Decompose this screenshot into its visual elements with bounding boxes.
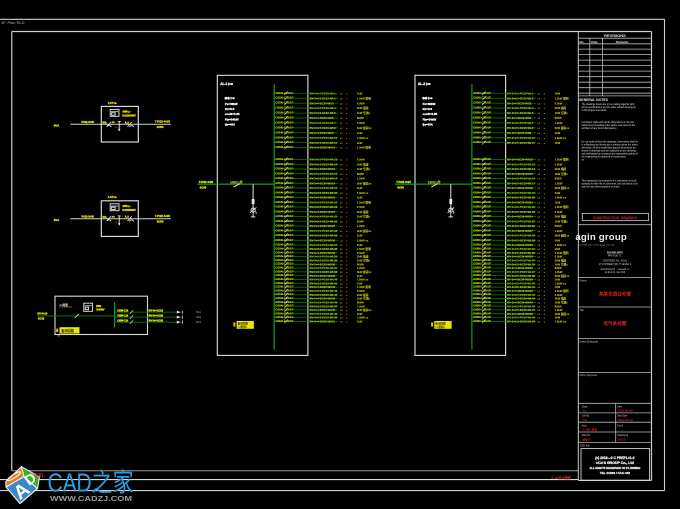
svg-text:1kW: 1kW bbox=[555, 191, 561, 195]
svg-text:BV-3×4-SC20-WX51: BV-3×4-SC20-WX51 bbox=[310, 319, 336, 323]
svg-text:C65N-C16/1P: C65N-C16/1P bbox=[275, 125, 293, 129]
svg-text:1.6kW xx: 1.6kW xx bbox=[357, 238, 369, 242]
svg-text:1.6kW xx: 1.6kW xx bbox=[555, 243, 567, 247]
svg-text:BV-2×2.5-PC16-WL13: BV-2×2.5-PC16-WL13 bbox=[310, 158, 338, 162]
svg-text:BV-3×4-SC20-WX27: BV-3×4-SC20-WX27 bbox=[507, 229, 533, 233]
svg-text:BV-3×2.5-SC15-WL20: BV-3×2.5-SC15-WL20 bbox=[310, 191, 338, 195]
svg-text:Contractor shall verify all th: Contractor shall verify all the dimensio… bbox=[582, 121, 635, 124]
svg-text:1kW: 1kW bbox=[555, 141, 561, 145]
svg-text:VV22-3×35: VV22-3×35 bbox=[81, 215, 94, 218]
svg-text:BV-3×4-SC20-WX6: BV-3×4-SC20-WX6 bbox=[310, 116, 334, 120]
svg-text:BV-3×4-SC20-WX12: BV-3×4-SC20-WX12 bbox=[507, 158, 533, 162]
svg-text:2kW 插座: 2kW 插座 bbox=[555, 297, 567, 301]
svg-text:BV-3×4-SC20-WX3: BV-3×4-SC20-WX3 bbox=[310, 101, 334, 105]
svg-text:.........: ......... bbox=[617, 428, 625, 432]
svg-text:1kW: 1kW bbox=[555, 238, 561, 242]
svg-text:C65N-C16/1P: C65N-C16/1P bbox=[473, 167, 491, 171]
svg-text:ALL RIGHTS RESERVED OF PLANNIN: ALL RIGHTS RESERVED OF PLANNING bbox=[589, 466, 640, 470]
svg-text:BV-3×2.5-SC15-WL17: BV-3×2.5-SC15-WL17 bbox=[507, 181, 535, 185]
svg-text:BV-3×4-SC20-WX39: BV-3×4-SC20-WX39 bbox=[507, 278, 533, 282]
svg-text:C65N-C16/1P: C65N-C16/1P bbox=[275, 200, 293, 204]
svg-text:1kW 空调x: 1kW 空调x bbox=[357, 297, 371, 301]
svg-text:C65N-C16/1P: C65N-C16/1P bbox=[473, 233, 491, 237]
svg-text:1.5kW 照明: 1.5kW 照明 bbox=[555, 205, 569, 209]
svg-text:备用回路: 备用回路 bbox=[60, 328, 75, 333]
svg-text:3×380V: 3×380V bbox=[96, 308, 105, 311]
svg-text:C65N-C16/1P: C65N-C16/1P bbox=[473, 224, 491, 228]
svg-text:Pjs=24kW: Pjs=24kW bbox=[423, 117, 437, 121]
svg-text:3kW 厨房xx: 3kW 厨房xx bbox=[357, 126, 372, 130]
svg-text:REVISIONS: REVISIONS bbox=[604, 33, 626, 38]
svg-text:Project: Project bbox=[580, 279, 588, 282]
svg-text:BV-2×2.5-PC16-WL22: BV-2×2.5-PC16-WL22 bbox=[310, 200, 338, 204]
svg-text:1AT1a: 1AT1a bbox=[108, 101, 117, 105]
svg-text:C65N-C16/1P: C65N-C16/1P bbox=[275, 162, 293, 166]
svg-text:Drawn (Designed): Drawn (Designed) bbox=[580, 340, 599, 343]
svg-text:C65N-C16/1P: C65N-C16/1P bbox=[473, 91, 491, 95]
svg-text:1kW 空调x: 1kW 空调x bbox=[555, 111, 569, 115]
svg-text:3×220/380V: 3×220/380V bbox=[122, 115, 136, 118]
svg-text:C65N-C16/1P: C65N-C16/1P bbox=[473, 140, 491, 144]
svg-text:C65N-C16/1P: C65N-C16/1P bbox=[275, 111, 293, 115]
svg-text:×Co'A GROUP Co., Ltd: ×Co'A GROUP Co., Ltd bbox=[596, 461, 634, 465]
svg-text:CONSTRUCTION DRAWING: CONSTRUCTION DRAWING bbox=[593, 216, 638, 220]
svg-text:17 N STREET RD 77 LEVEL 9: 17 N STREET RD 77 LEVEL 9 bbox=[599, 263, 632, 266]
svg-text:1kW 空调x: 1kW 空调x bbox=[555, 172, 569, 176]
svg-text:BV-3×4-SC20-WX42: BV-3×4-SC20-WX42 bbox=[310, 285, 336, 289]
svg-text:BV-3×4-SC20-WX24: BV-3×4-SC20-WX24 bbox=[310, 210, 336, 214]
svg-text:C65N-C16/1P: C65N-C16/1P bbox=[473, 135, 491, 139]
svg-text:1F. Plan RLD: 1F. Plan RLD bbox=[1, 20, 25, 25]
svg-text:shown in drawings and are subj: shown in drawings and are subjected to s… bbox=[582, 150, 637, 153]
svg-text:C65N-C16/1P: C65N-C16/1P bbox=[275, 140, 293, 144]
svg-text:BV-3×4-SC20-WX9: BV-3×4-SC20-WX9 bbox=[310, 131, 334, 135]
svg-text:BV-2×2.5-PC16-WL4: BV-2×2.5-PC16-WL4 bbox=[507, 106, 534, 110]
svg-text:kWh▷件: kWh▷件 bbox=[428, 179, 441, 184]
svg-text:3kW 厨房xx: 3kW 厨房xx bbox=[357, 308, 372, 312]
svg-text:3kW 厨房xx: 3kW 厨房xx bbox=[555, 234, 570, 238]
svg-text:1kW 空调x: 1kW 空调x bbox=[555, 262, 569, 266]
svg-text:电气系统图: 电气系统图 bbox=[603, 320, 626, 327]
svg-text:BV-3×2.5-SC15-WL47: BV-3×2.5-SC15-WL47 bbox=[310, 304, 338, 308]
svg-text:C65N-C16/1P: C65N-C16/1P bbox=[275, 214, 293, 218]
svg-text:tel 210 21 / fax 010: tel 210 21 / fax 010 bbox=[605, 271, 626, 274]
svg-text:1kW: 1kW bbox=[555, 247, 561, 251]
svg-text:0.5kW: 0.5kW bbox=[357, 101, 365, 105]
svg-text:Wh: Wh bbox=[103, 121, 107, 125]
svg-text:800W: 800W bbox=[357, 300, 364, 304]
svg-text:The drawings herein are to be: The drawings herein are to be reading to… bbox=[582, 103, 635, 106]
svg-text:BV-3×4-SC20-WX12: BV-3×4-SC20-WX12 bbox=[310, 146, 336, 150]
svg-text:BV-3×2.5-SC15-WL41: BV-3×2.5-SC15-WL41 bbox=[310, 281, 338, 285]
svg-text:1.5kW 照明: 1.5kW 照明 bbox=[357, 200, 371, 204]
svg-text:2kW 插座: 2kW 插座 bbox=[357, 210, 369, 214]
svg-text:kWh: kWh bbox=[96, 305, 102, 308]
svg-text:C65N-C16/1P: C65N-C16/1P bbox=[473, 219, 491, 223]
svg-text:C65N-C16/1P: C65N-C16/1P bbox=[473, 176, 491, 180]
svg-text:C65N-C16/1P: C65N-C16/1P bbox=[275, 91, 293, 95]
svg-text:BV-3×4-SC20: BV-3×4-SC20 bbox=[149, 310, 164, 313]
svg-text:SC32: SC32 bbox=[38, 317, 45, 320]
svg-text:BV-3×4-SC20-WX48: BV-3×4-SC20-WX48 bbox=[507, 312, 533, 316]
svg-text:1kW: 1kW bbox=[555, 200, 561, 204]
svg-text:××照明×: ××照明× bbox=[435, 325, 445, 329]
svg-text:1.2kW: 1.2kW bbox=[555, 229, 563, 233]
svg-text:BV-2×2.5-PC16-WL46: BV-2×2.5-PC16-WL46 bbox=[310, 300, 338, 304]
svg-text:and verification by contractor: and verification by contractor and respo… bbox=[582, 153, 639, 156]
svg-text:otherwise. All dims shall foll: otherwise. All dims shall follow figured… bbox=[582, 147, 637, 150]
svg-text:2013-06-30: 2013-06-30 bbox=[617, 418, 633, 422]
svg-text:YJV22-4×25: YJV22-4×25 bbox=[396, 180, 411, 184]
svg-text:Wh: Wh bbox=[103, 215, 107, 219]
svg-text:BV-2×2.5-PC16-WL40: BV-2×2.5-PC16-WL40 bbox=[310, 278, 338, 282]
svg-text:Pe=30kW: Pe=30kW bbox=[225, 102, 238, 106]
svg-text:1.6kW xx: 1.6kW xx bbox=[357, 191, 369, 195]
svg-text:before the proceeding of the w: before the proceeding of the works, and … bbox=[582, 124, 636, 127]
svg-text:C65N-C16/1P: C65N-C16/1P bbox=[473, 162, 491, 166]
svg-text:Kx=0.8: Kx=0.8 bbox=[423, 107, 433, 111]
svg-text:BV-2×2.5-PC16-WL43: BV-2×2.5-PC16-WL43 bbox=[310, 289, 338, 293]
svg-text:1kW 空调x: 1kW 空调x bbox=[357, 215, 371, 219]
svg-text:BV-2×2.5-PC16-WL22: BV-2×2.5-PC16-WL22 bbox=[507, 205, 535, 209]
svg-text:1.2kW: 1.2kW bbox=[555, 270, 563, 274]
svg-text:BV-3×2.5-SC15-WL8: BV-3×2.5-SC15-WL8 bbox=[310, 126, 337, 130]
svg-text:BV-3×4-SC20-WX18: BV-3×4-SC20-WX18 bbox=[507, 186, 533, 190]
svg-text:authority for their file or co: authority for their file or comments, an… bbox=[582, 183, 639, 186]
svg-text:BV-3×2.5-SC15-WL29: BV-3×2.5-SC15-WL29 bbox=[507, 238, 535, 242]
svg-text:C65N-C16/1P: C65N-C16/1P bbox=[275, 181, 293, 185]
svg-text:1kW: 1kW bbox=[357, 312, 363, 316]
svg-text:C65N-C16/1P: C65N-C16/1P bbox=[473, 171, 491, 175]
svg-text:BV-3×4-SC20-WX36: BV-3×4-SC20-WX36 bbox=[310, 262, 336, 266]
svg-text:C65N-C16/1P: C65N-C16/1P bbox=[473, 190, 491, 194]
svg-text:C65N-C16/1P: C65N-C16/1P bbox=[473, 319, 491, 323]
svg-text:YJV22-4×25: YJV22-4×25 bbox=[155, 214, 171, 218]
svg-text:AL-2 ▷■: AL-2 ▷■ bbox=[418, 82, 431, 86]
svg-text:1kW 空调x: 1kW 空调x bbox=[357, 111, 371, 115]
svg-text:C65N-C16/1P: C65N-C16/1P bbox=[473, 106, 491, 110]
svg-text:BV-3×4-SC20-WX42: BV-3×4-SC20-WX42 bbox=[507, 289, 533, 293]
svg-text:3kW 厨房xx: 3kW 厨房xx bbox=[555, 186, 570, 190]
svg-text:1:100 设计: 1:100 设计 bbox=[583, 427, 599, 432]
svg-text:C65N-C16/1P: C65N-C16/1P bbox=[473, 214, 491, 218]
svg-text:BV-2×2.5-PC16-WL34: BV-2×2.5-PC16-WL34 bbox=[310, 255, 338, 259]
svg-text:BV-2×2.5-PC16-WL28: BV-2×2.5-PC16-WL28 bbox=[507, 234, 535, 238]
svg-text:BV-2×2.5-PC16-WL7: BV-2×2.5-PC16-WL7 bbox=[507, 121, 534, 125]
svg-text:C65N-C16/1P: C65N-C16/1P bbox=[275, 190, 293, 194]
svg-text:BV-3×4-SC20-WX48: BV-3×4-SC20-WX48 bbox=[310, 308, 336, 312]
svg-text:1.5kW 照明: 1.5kW 照明 bbox=[555, 96, 569, 100]
svg-text:备用回路: 备用回路 bbox=[237, 321, 249, 325]
svg-text:YJV22-4×25: YJV22-4×25 bbox=[199, 180, 214, 184]
svg-text:BV-3×2.5-SC15-WL8: BV-3×2.5-SC15-WL8 bbox=[507, 126, 534, 130]
svg-text:1kW: 1kW bbox=[555, 285, 561, 289]
svg-text:1.6kW xx: 1.6kW xx bbox=[555, 136, 567, 140]
svg-text:C65N-C16/1P: C65N-C16/1P bbox=[275, 106, 293, 110]
svg-text:the engineering for approval o: the engineering for approval of construc… bbox=[582, 156, 627, 159]
svg-text:××照明×: ××照明× bbox=[238, 325, 248, 329]
svg-text:1.5kW 照明: 1.5kW 照明 bbox=[357, 146, 371, 150]
svg-text:BV-2×2.5-PC16-WL4: BV-2×2.5-PC16-WL4 bbox=[310, 106, 337, 110]
svg-text:1kW: 1kW bbox=[555, 316, 561, 320]
svg-text:C65N-C16/1P: C65N-C16/1P bbox=[275, 157, 293, 161]
svg-text:BV-3×2.5-SC15-WL5: BV-3×2.5-SC15-WL5 bbox=[507, 111, 534, 115]
svg-text:C65N-C16: C65N-C16 bbox=[117, 311, 129, 313]
svg-text:Do not scale off from the draw: Do not scale off from the drawings, dime… bbox=[582, 141, 639, 144]
svg-text:BV-3×4-SC20-WX18: BV-3×4-SC20-WX18 bbox=[310, 181, 336, 185]
svg-text:3kW 厨房xx: 3kW 厨房xx bbox=[357, 181, 372, 185]
svg-text:BV-3×2.5-SC15-WL2: BV-3×2.5-SC15-WL2 bbox=[507, 96, 534, 100]
svg-text:1.2kW: 1.2kW bbox=[357, 121, 365, 125]
svg-text:1.2kW: 1.2kW bbox=[357, 304, 365, 308]
svg-text:C65N-C16/1P: C65N-C16/1P bbox=[275, 233, 293, 237]
svg-text:YJV22-4×25: YJV22-4×25 bbox=[155, 120, 171, 124]
svg-text:BV-3×4-SC20-WX21: BV-3×4-SC20-WX21 bbox=[507, 200, 533, 204]
svg-text:Ijs=43A: Ijs=43A bbox=[422, 123, 433, 127]
svg-text:2kW 插座: 2kW 插座 bbox=[555, 167, 567, 171]
svg-text:0.5kW: 0.5kW bbox=[555, 210, 563, 214]
svg-text:C65N-C16/1P: C65N-C16/1P bbox=[275, 176, 293, 180]
svg-text:2kW 插座: 2kW 插座 bbox=[357, 106, 369, 110]
svg-text:C65N-C16: C65N-C16 bbox=[117, 316, 129, 318]
svg-text:This drawing for the purposes: This drawing for the purposes of a submi… bbox=[582, 180, 637, 183]
svg-text:3kW 厨房xx: 3kW 厨房xx bbox=[357, 270, 372, 274]
svg-text:WE2: WE2 bbox=[196, 317, 202, 319]
svg-text:BV-3×4-SC20: BV-3×4-SC20 bbox=[149, 320, 164, 323]
svg-text:BV-3×4-SC20-WX33: BV-3×4-SC20-WX33 bbox=[507, 255, 533, 259]
svg-text:Title: Title bbox=[580, 309, 585, 312]
svg-text:SC50: SC50 bbox=[200, 185, 207, 189]
svg-text:1.5kW 照明: 1.5kW 照明 bbox=[357, 247, 371, 251]
svg-text:BV-2×2.5-PC16-WL43: BV-2×2.5-PC16-WL43 bbox=[507, 293, 535, 297]
svg-text:BV-3×2.5-SC15-WL5: BV-3×2.5-SC15-WL5 bbox=[310, 111, 337, 115]
svg-text:CAD File: CAD File bbox=[580, 444, 591, 447]
svg-text:0.5kW: 0.5kW bbox=[555, 255, 563, 259]
svg-text:GENERAL NOTES: GENERAL NOTES bbox=[579, 98, 609, 102]
svg-text:agin group: agin group bbox=[575, 232, 627, 243]
svg-text:WE1: WE1 bbox=[196, 312, 202, 314]
svg-text:800W: 800W bbox=[555, 266, 562, 270]
svg-text:C65N-C16/1P: C65N-C16/1P bbox=[275, 228, 293, 232]
svg-text:10110: 10110 bbox=[617, 438, 626, 442]
svg-text:BV-3×2.5-SC15-WL14: BV-3×2.5-SC15-WL14 bbox=[507, 167, 535, 171]
svg-text:3×220/380V: 3×220/380V bbox=[122, 209, 136, 212]
svg-text:BV-2×2.5-PC16-WL40: BV-2×2.5-PC16-WL40 bbox=[507, 281, 535, 285]
svg-text:BV-3×4-SC20-WX15: BV-3×4-SC20-WX15 bbox=[507, 172, 533, 176]
svg-text:C65N-C16/1P: C65N-C16/1P bbox=[275, 120, 293, 124]
svg-text:cosΦ=0.85: cosΦ=0.85 bbox=[225, 112, 240, 116]
svg-text:BV-3×4-SC20-WX6: BV-3×4-SC20-WX6 bbox=[507, 116, 531, 120]
svg-text:C65N-C16/1P: C65N-C16/1P bbox=[275, 205, 293, 209]
svg-text:Pe=30kW: Pe=30kW bbox=[423, 102, 436, 106]
svg-text:◎◎ ▷■: ◎◎ ▷■ bbox=[422, 96, 432, 100]
svg-text:1.5kW 照明: 1.5kW 照明 bbox=[555, 158, 569, 162]
svg-text:xx照明: xx照明 bbox=[60, 303, 69, 307]
svg-text:Chk'd / Approved: Chk'd / Approved bbox=[580, 374, 598, 377]
svg-text:800W: 800W bbox=[357, 219, 364, 223]
svg-text:1.2kW: 1.2kW bbox=[357, 266, 365, 270]
svg-text:BV-2×2.5-PC16-WL49: BV-2×2.5-PC16-WL49 bbox=[507, 316, 535, 320]
svg-text:BV-3×2.5-SC15-WL26: BV-3×2.5-SC15-WL26 bbox=[507, 224, 535, 228]
svg-text:BV-3×2.5-SC15-WL35: BV-3×2.5-SC15-WL35 bbox=[310, 259, 338, 263]
svg-text:BV-3×2.5-SC15-WL17: BV-3×2.5-SC15-WL17 bbox=[310, 177, 338, 181]
svg-text:BV-3×4-SC20-WX24: BV-3×4-SC20-WX24 bbox=[507, 215, 533, 219]
svg-text:BV-2×2.5-PC16-WL16: BV-2×2.5-PC16-WL16 bbox=[507, 177, 535, 181]
svg-text:1kW: 1kW bbox=[357, 281, 363, 285]
svg-text:2kW 插座: 2kW 插座 bbox=[357, 255, 369, 259]
svg-text:3kW 厨房xx: 3kW 厨房xx bbox=[555, 312, 570, 316]
svg-text:PRAGUE TC: PRAGUE TC bbox=[608, 255, 622, 258]
svg-text:Ijs=43A: Ijs=43A bbox=[225, 123, 236, 127]
svg-text:3kW 厨房xx: 3kW 厨房xx bbox=[357, 229, 372, 233]
svg-text:C65N-C16/1P: C65N-C16/1P bbox=[275, 224, 293, 228]
svg-text:BV-2×2.5-PC16-WL28: BV-2×2.5-PC16-WL28 bbox=[310, 229, 338, 233]
svg-text:a member firm | of the group: a member firm | of the group assoc intl. bbox=[579, 244, 615, 247]
svg-text:1.5kW 照明: 1.5kW 照明 bbox=[555, 251, 569, 255]
svg-text:1.2kW: 1.2kW bbox=[555, 181, 563, 185]
svg-text:BV-2×2.5-PC16-WL16: BV-2×2.5-PC16-WL16 bbox=[310, 172, 338, 176]
svg-text:BV-2×2.5-PC16-WL31: BV-2×2.5-PC16-WL31 bbox=[507, 247, 535, 251]
svg-text:1kW: 1kW bbox=[357, 243, 363, 247]
svg-text:C65N-C16/1P: C65N-C16/1P bbox=[473, 205, 491, 209]
svg-text:us.: us. bbox=[582, 160, 585, 162]
svg-text:BV-2×2.5-PC16-WL7: BV-2×2.5-PC16-WL7 bbox=[310, 121, 337, 125]
svg-text:C65N-C16/1P: C65N-C16/1P bbox=[275, 96, 293, 100]
svg-text:BV-3×4-SC20-WX27: BV-3×4-SC20-WX27 bbox=[310, 224, 336, 228]
svg-text:BV-3×2.5-SC15-WL44: BV-3×2.5-SC15-WL44 bbox=[507, 297, 535, 301]
svg-text:Pjs=24kW: Pjs=24kW bbox=[225, 117, 239, 121]
svg-text:BV-3×4-SC20-WX39: BV-3×4-SC20-WX39 bbox=[310, 274, 336, 278]
svg-text:1kW: 1kW bbox=[357, 186, 363, 190]
svg-text:C65N-C16/1P: C65N-C16/1P bbox=[473, 209, 491, 213]
svg-text:3kW 厨房xx: 3kW 厨房xx bbox=[555, 126, 570, 130]
svg-text:0.5kW: 0.5kW bbox=[555, 293, 563, 297]
svg-text:C65N-C16/1P: C65N-C16/1P bbox=[473, 181, 491, 185]
svg-text:#kA: #kA bbox=[54, 218, 60, 222]
svg-text:800W: 800W bbox=[555, 224, 562, 228]
svg-text:C65N-C16/1P: C65N-C16/1P bbox=[275, 238, 293, 242]
svg-text:SC50: SC50 bbox=[157, 125, 164, 129]
svg-text:cosΦ=0.85: cosΦ=0.85 bbox=[423, 112, 438, 116]
svg-text:BV-2×2.5-PC16-WL25: BV-2×2.5-PC16-WL25 bbox=[310, 215, 338, 219]
svg-text:BV-2×2.5-PC16-WL1: BV-2×2.5-PC16-WL1 bbox=[310, 91, 337, 95]
svg-text:BV-2×2.5-PC16-WL19: BV-2×2.5-PC16-WL19 bbox=[507, 191, 535, 195]
svg-text:BV-3×4-SC20-WX30: BV-3×4-SC20-WX30 bbox=[310, 238, 336, 242]
svg-text:BV-3×2.5-SC15-WL47: BV-3×2.5-SC15-WL47 bbox=[507, 308, 535, 312]
svg-text:BV-3×2.5-SC15-WL44: BV-3×2.5-SC15-WL44 bbox=[310, 293, 338, 297]
svg-text:A.A: A.A bbox=[125, 121, 129, 124]
svg-text:C65N-C16/1P: C65N-C16/1P bbox=[275, 186, 293, 190]
svg-text:1kW: 1kW bbox=[555, 91, 561, 95]
svg-text:0.5kW: 0.5kW bbox=[555, 162, 563, 166]
svg-text:1.6kW xx: 1.6kW xx bbox=[357, 278, 369, 282]
svg-text:C65N-C16/1P: C65N-C16/1P bbox=[275, 116, 293, 120]
svg-text:BV-2×2.5-PC16-WL1: BV-2×2.5-PC16-WL1 bbox=[507, 91, 534, 95]
svg-text:WE3: WE3 bbox=[196, 322, 202, 324]
svg-text:C65N-C16/1P: C65N-C16/1P bbox=[473, 96, 491, 100]
svg-text:1.2kW: 1.2kW bbox=[555, 121, 563, 125]
svg-text:BV-3×2.5-SC15-WL2: BV-3×2.5-SC15-WL2 bbox=[310, 96, 337, 100]
svg-text:BV-2×2.5-PC16-WL46: BV-2×2.5-PC16-WL46 bbox=[507, 304, 535, 308]
svg-text:BV-3×4-SC20-WX33: BV-3×4-SC20-WX33 bbox=[310, 251, 336, 255]
svg-text:1kW: 1kW bbox=[357, 319, 363, 323]
svg-text:1.2kW: 1.2kW bbox=[357, 224, 365, 228]
svg-text:C65N-C16: C65N-C16 bbox=[117, 321, 129, 323]
svg-text:BV-3×2.5-SC15-WL50: BV-3×2.5-SC15-WL50 bbox=[507, 319, 535, 323]
svg-text:TEL 21032 / FAX·×32: TEL 21032 / FAX·×32 bbox=[600, 471, 630, 475]
svg-text:0.5kW: 0.5kW bbox=[357, 289, 365, 293]
svg-text:C65N-C16/1P: C65N-C16/1P bbox=[275, 145, 293, 149]
svg-text:1kW 空调x: 1kW 空调x bbox=[555, 219, 569, 223]
svg-text:1kW: 1kW bbox=[357, 131, 363, 135]
svg-text:C65N-C16/1P: C65N-C16/1P bbox=[473, 120, 491, 124]
svg-text:2kW 插座: 2kW 插座 bbox=[357, 162, 369, 166]
svg-text:BV-2×2.5-PC16-WL34: BV-2×2.5-PC16-WL34 bbox=[507, 259, 535, 263]
svg-text:BV-3×2.5-SC15-WL41: BV-3×2.5-SC15-WL41 bbox=[507, 285, 535, 289]
svg-text:1kW: 1kW bbox=[555, 278, 561, 282]
svg-text:BV-3×2.5-SC15-WL32: BV-3×2.5-SC15-WL32 bbox=[507, 251, 535, 255]
svg-text:BV-2×2.5-PC16-WL37: BV-2×2.5-PC16-WL37 bbox=[310, 266, 338, 270]
svg-text:1kW 空调x: 1kW 空调x bbox=[555, 300, 569, 304]
svg-text:1.6kW xx: 1.6kW xx bbox=[555, 319, 567, 323]
svg-text:SC50: SC50 bbox=[397, 185, 404, 189]
svg-text:BV-2×2.5-PC16-WL19: BV-2×2.5-PC16-WL19 bbox=[310, 186, 338, 190]
svg-text:备用回路: 备用回路 bbox=[434, 321, 446, 325]
svg-text:CAD之家: CAD之家 bbox=[48, 467, 134, 497]
svg-text:1.2kW: 1.2kW bbox=[357, 177, 365, 181]
svg-text:800W: 800W bbox=[357, 262, 364, 266]
svg-text:3kW 厨房xx: 3kW 厨房xx bbox=[555, 274, 570, 278]
svg-text:Kx=0.8: Kx=0.8 bbox=[225, 107, 235, 111]
svg-text:2kW 插座: 2kW 插座 bbox=[555, 106, 567, 110]
svg-text:BV-3×4-SC20-WX9: BV-3×4-SC20-WX9 bbox=[507, 131, 531, 135]
svg-text:BV-3×2.5-SC15-WL38: BV-3×2.5-SC15-WL38 bbox=[310, 270, 338, 274]
svg-text:0.5kW: 0.5kW bbox=[357, 205, 365, 209]
svg-text:C65N-C16/1P: C65N-C16/1P bbox=[473, 186, 491, 190]
svg-text:0.5kW: 0.5kW bbox=[555, 101, 563, 105]
svg-text:800W: 800W bbox=[555, 116, 562, 120]
svg-text:1kW: 1kW bbox=[357, 234, 363, 238]
svg-text:kWh ▷: kWh ▷ bbox=[123, 110, 132, 114]
svg-text:BV-2×2.5-PC16-WL25: BV-2×2.5-PC16-WL25 bbox=[507, 219, 535, 223]
svg-text:BV-3×2.5-SC15-WL20: BV-3×2.5-SC15-WL20 bbox=[507, 196, 535, 200]
svg-text:1kW 空调x: 1kW 空调x bbox=[357, 167, 371, 171]
svg-text:BV-3×4-SC20-WX36: BV-3×4-SC20-WX36 bbox=[507, 266, 533, 270]
svg-text:1kW 空调x: 1kW 空调x bbox=[357, 259, 371, 263]
svg-text:手机: 手机 bbox=[34, 472, 44, 479]
svg-text:BV-3×4-SC20-WX21: BV-3×4-SC20-WX21 bbox=[310, 196, 336, 200]
svg-text:1kW: 1kW bbox=[357, 141, 363, 145]
svg-text:C65N-C16/1P: C65N-C16/1P bbox=[473, 125, 491, 129]
svg-text:A.A: A.A bbox=[125, 216, 129, 219]
svg-text:800W: 800W bbox=[357, 116, 364, 120]
svg-text:1kW: 1kW bbox=[555, 131, 561, 135]
svg-text:BV-3×2.5-SC15-WL26: BV-3×2.5-SC15-WL26 bbox=[310, 219, 338, 223]
svg-text:BV-2×2.5-PC16-WL31: BV-2×2.5-PC16-WL31 bbox=[310, 243, 338, 247]
svg-text:C65N-C16/1P: C65N-C16/1P bbox=[473, 195, 491, 199]
svg-text:C65N-C16/1P: C65N-C16/1P bbox=[473, 200, 491, 204]
svg-text:BV-3×2.5-SC15-WL11: BV-3×2.5-SC15-WL11 bbox=[507, 141, 535, 145]
svg-text:all the specifications and the: all the specifications and the other rel… bbox=[582, 106, 637, 109]
svg-text:BV-3×2.5-SC15-WL23: BV-3×2.5-SC15-WL23 bbox=[507, 210, 535, 214]
svg-text:C65N-C16/1P: C65N-C16/1P bbox=[275, 319, 293, 323]
svg-text:1.6kW xx: 1.6kW xx bbox=[555, 281, 567, 285]
svg-text:C65N-C16/1P: C65N-C16/1P bbox=[473, 130, 491, 134]
svg-text:C65N-C16/1P: C65N-C16/1P bbox=[473, 157, 491, 161]
svg-text:C65N-C16/1P: C65N-C16/1P bbox=[275, 167, 293, 171]
svg-text:某某花园住宅楼: 某某花园住宅楼 bbox=[598, 290, 632, 297]
svg-text:1.5kW 照明: 1.5kW 照明 bbox=[555, 289, 569, 293]
